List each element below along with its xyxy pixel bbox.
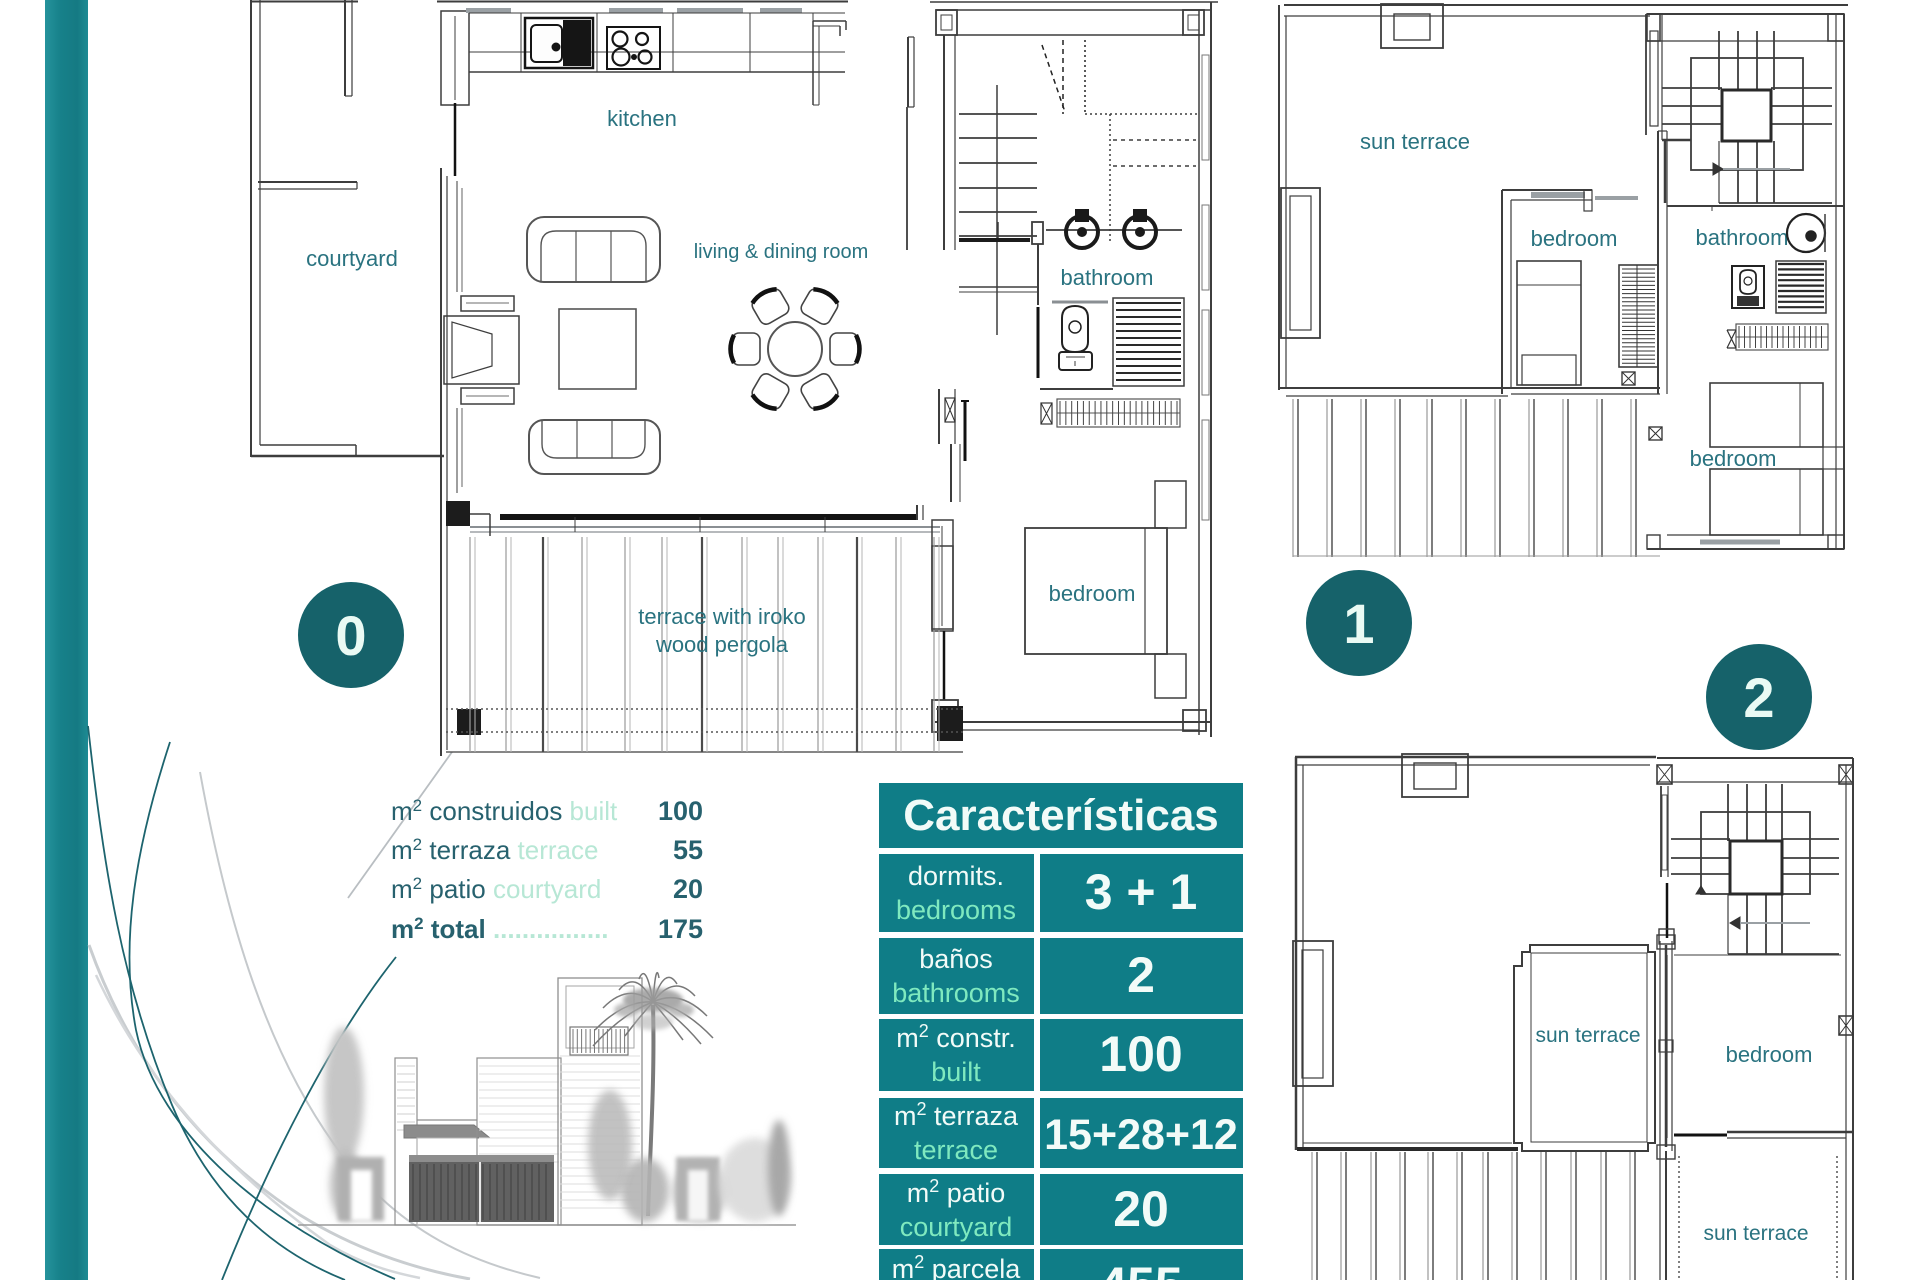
svg-text:built: built <box>931 1057 981 1087</box>
svg-text:living & dining room: living & dining room <box>694 241 869 263</box>
svg-text:20: 20 <box>1113 1181 1169 1237</box>
svg-text:sun terrace: sun terrace <box>1360 129 1470 154</box>
svg-text:55: 55 <box>673 835 703 865</box>
svg-text:1: 1 <box>1343 592 1374 655</box>
svg-text:Características: Características <box>903 791 1219 840</box>
svg-text:m2 parcela: m2 parcela <box>892 1252 1022 1280</box>
svg-text:m2 patio: m2 patio <box>907 1176 1006 1208</box>
svg-text:sun terrace: sun terrace <box>1535 1024 1640 1047</box>
svg-text:m2 construidos built: m2 construidos built <box>391 796 618 826</box>
svg-text:bathrooms: bathrooms <box>892 978 1020 1008</box>
svg-text:20: 20 <box>673 874 703 904</box>
svg-text:0: 0 <box>335 604 366 667</box>
svg-text:courtyard: courtyard <box>900 1212 1013 1242</box>
svg-text:bedroom: bedroom <box>1726 1042 1813 1067</box>
svg-text:sun terrace: sun terrace <box>1703 1222 1808 1245</box>
svg-text:15+28+12: 15+28+12 <box>1044 1111 1238 1159</box>
svg-text:bathroom: bathroom <box>1696 225 1789 250</box>
svg-text:175: 175 <box>658 914 703 944</box>
svg-text:dormits.: dormits. <box>908 861 1004 891</box>
svg-text:m2 patio courtyard: m2 patio courtyard <box>391 874 601 904</box>
svg-text:m2 total ................: m2 total ................ <box>391 914 609 944</box>
svg-text:bedroom: bedroom <box>1049 581 1136 606</box>
svg-text:bedroom: bedroom <box>1690 446 1777 471</box>
svg-text:3 + 1: 3 + 1 <box>1085 864 1198 920</box>
svg-text:m2 terraza terrace: m2 terraza terrace <box>391 835 598 865</box>
svg-text:baños: baños <box>919 944 993 974</box>
svg-text:terrace with iroko: terrace with iroko <box>638 604 806 629</box>
svg-text:100: 100 <box>658 796 703 826</box>
svg-text:kitchen: kitchen <box>607 106 677 131</box>
svg-text:2: 2 <box>1743 666 1774 729</box>
svg-text:100: 100 <box>1099 1026 1182 1082</box>
svg-text:455: 455 <box>1099 1257 1182 1280</box>
svg-text:m2 constr.: m2 constr. <box>896 1021 1016 1053</box>
svg-text:wood pergola: wood pergola <box>655 632 789 657</box>
svg-text:terrace: terrace <box>914 1135 998 1165</box>
svg-text:courtyard: courtyard <box>306 246 398 271</box>
svg-text:m2 terraza: m2 terraza <box>894 1099 1019 1131</box>
svg-text:bathroom: bathroom <box>1061 265 1154 290</box>
svg-text:bedrooms: bedrooms <box>896 895 1016 925</box>
svg-text:bedroom: bedroom <box>1531 226 1618 251</box>
svg-text:2: 2 <box>1127 947 1155 1003</box>
